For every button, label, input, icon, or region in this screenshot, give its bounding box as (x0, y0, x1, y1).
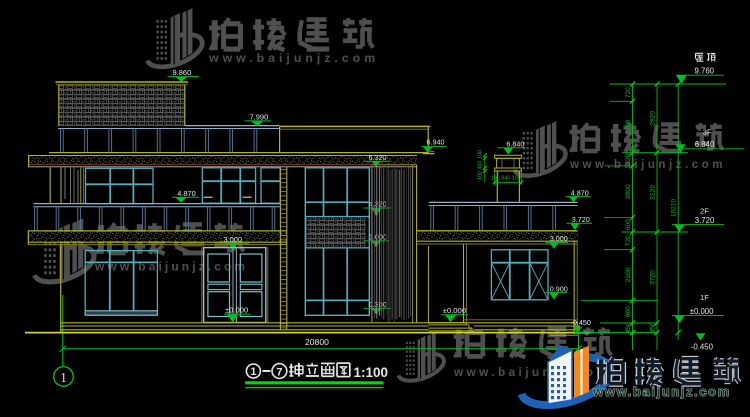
svg-text:600: 600 (625, 219, 632, 230)
svg-text:4.870: 4.870 (571, 188, 589, 197)
svg-text:6.840: 6.840 (506, 140, 524, 149)
svg-text:2F: 2F (700, 207, 709, 216)
svg-text:3.000: 3.000 (224, 235, 243, 244)
svg-text:900: 900 (625, 306, 632, 317)
svg-text:2000: 2000 (625, 184, 632, 199)
svg-text:720: 720 (625, 235, 632, 246)
svg-text:4.870: 4.870 (177, 189, 196, 198)
svg-text:7.990: 7.990 (250, 113, 269, 122)
svg-text:±0.000: ±0.000 (443, 306, 466, 315)
svg-text:1F: 1F (700, 293, 709, 302)
svg-text:9.760: 9.760 (695, 67, 715, 76)
svg-text:3.720: 3.720 (572, 215, 590, 224)
svg-text:1:100: 1:100 (354, 365, 389, 380)
svg-text:3.000: 3.000 (550, 234, 568, 243)
svg-text:2100: 2100 (625, 267, 632, 282)
svg-text:www.baijunjz.com: www.baijunjz.com (592, 384, 731, 399)
svg-text:2200: 2200 (625, 119, 632, 134)
svg-text:100 840 100: 100 840 100 (491, 176, 521, 182)
svg-text:1: 1 (60, 371, 67, 386)
svg-text:450: 450 (649, 322, 656, 333)
svg-text:±0.000: ±0.000 (690, 307, 714, 316)
svg-text:1: 1 (250, 366, 256, 378)
svg-text:6.940: 6.940 (427, 137, 445, 146)
svg-text:www.baijunjz.com: www.baijunjz.com (569, 158, 726, 171)
svg-text:3.720: 3.720 (695, 216, 715, 225)
svg-text:-0.450: -0.450 (571, 318, 591, 327)
svg-text:720: 720 (625, 87, 632, 98)
svg-text:7: 7 (276, 366, 282, 378)
svg-text:3120: 3120 (649, 185, 656, 200)
svg-text:9.860: 9.860 (173, 68, 192, 77)
svg-text:0.900: 0.900 (550, 284, 568, 293)
svg-text:-0.450: -0.450 (691, 343, 714, 352)
svg-text:10210: 10210 (671, 199, 678, 218)
svg-text:2920: 2920 (649, 111, 656, 126)
svg-text:450: 450 (625, 322, 632, 333)
svg-text:6.320: 6.320 (369, 153, 387, 162)
svg-text:520: 520 (625, 153, 632, 164)
svg-text:20800: 20800 (305, 337, 329, 347)
svg-text:±0.000: ±0.000 (225, 306, 248, 315)
svg-text:3720: 3720 (649, 270, 656, 285)
svg-text:6.840: 6.840 (695, 140, 715, 149)
svg-text:100 400 100: 100 400 100 (478, 150, 484, 180)
svg-text:3F: 3F (703, 128, 712, 137)
svg-text:www.baijunjz.com: www.baijunjz.com (208, 51, 379, 65)
